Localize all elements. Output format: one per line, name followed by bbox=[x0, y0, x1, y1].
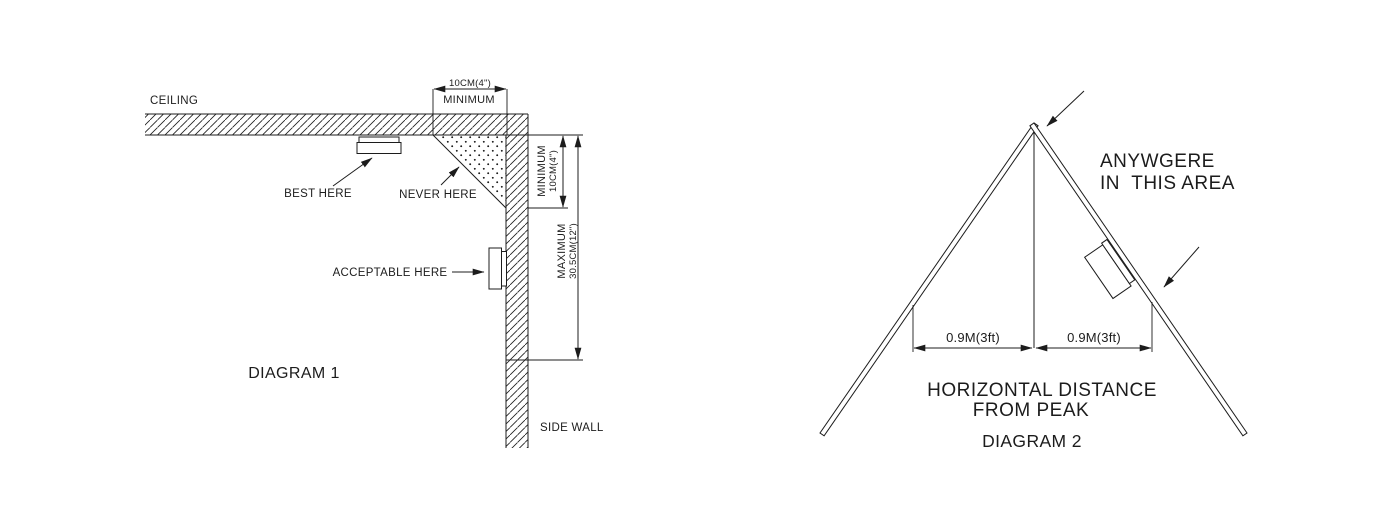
diagram-1: CEILING SIDE WALL 10CM(4") MINIMUM BEST … bbox=[145, 78, 604, 448]
top-dimension-value: 10CM(4") bbox=[449, 78, 491, 89]
side-wall-label: SIDE WALL bbox=[540, 422, 604, 434]
area-note-line2: IN THIS AREA bbox=[1100, 173, 1235, 194]
side-wall-hatch bbox=[506, 135, 528, 448]
diagram-2: ANYWGERE IN THIS AREA 0.9M(3ft) 0.9M(3ft… bbox=[820, 91, 1247, 451]
caption-line1: HORIZONTAL DISTANCE bbox=[927, 380, 1157, 401]
peak-arrow-icon bbox=[1047, 91, 1084, 126]
corner-min-value: 10CM(4") bbox=[548, 150, 559, 192]
corner-min-dimension: MINIMUM 10CM(4") bbox=[528, 136, 568, 208]
wall-max-value: 30.5CM(12") bbox=[568, 223, 579, 279]
diagram2-title: DIAGRAM 2 bbox=[982, 431, 1082, 451]
detector-base bbox=[502, 252, 507, 287]
best-here-label: BEST HERE bbox=[284, 188, 352, 200]
caption-line2: FROM PEAK bbox=[973, 400, 1089, 421]
diagram-svg: CEILING SIDE WALL 10CM(4") MINIMUM BEST … bbox=[0, 0, 1400, 520]
right-distance-value: 0.9M(3ft) bbox=[1067, 330, 1121, 345]
diagram1-title: DIAGRAM 1 bbox=[248, 365, 340, 382]
wall-max-caption: MAXIMUM bbox=[556, 223, 568, 278]
detector-body bbox=[489, 248, 502, 289]
never-here-arrow-icon bbox=[441, 167, 459, 185]
detector-body bbox=[357, 143, 401, 154]
left-distance-value: 0.9M(3ft) bbox=[946, 330, 1000, 345]
area-note-line1: ANYWGERE bbox=[1100, 151, 1215, 172]
detector-base bbox=[359, 137, 399, 143]
best-here-arrow-icon bbox=[333, 158, 372, 186]
slope-arrow-icon bbox=[1164, 247, 1199, 287]
ceiling-hatch bbox=[145, 114, 528, 135]
never-here-label: NEVER HERE bbox=[399, 189, 477, 201]
peak-distance-dimensions: 0.9M(3ft) 0.9M(3ft) bbox=[913, 302, 1152, 352]
placement-instruction-figure: CEILING SIDE WALL 10CM(4") MINIMUM BEST … bbox=[0, 0, 1400, 520]
wall-detector bbox=[489, 248, 507, 289]
acceptable-here-label: ACCEPTABLE HERE bbox=[333, 267, 448, 279]
ceiling-detector bbox=[357, 137, 401, 154]
top-dimension-caption: MINIMUM bbox=[443, 94, 495, 106]
ceiling-label: CEILING bbox=[150, 95, 198, 107]
corner-min-caption: MINIMUM bbox=[536, 145, 548, 197]
